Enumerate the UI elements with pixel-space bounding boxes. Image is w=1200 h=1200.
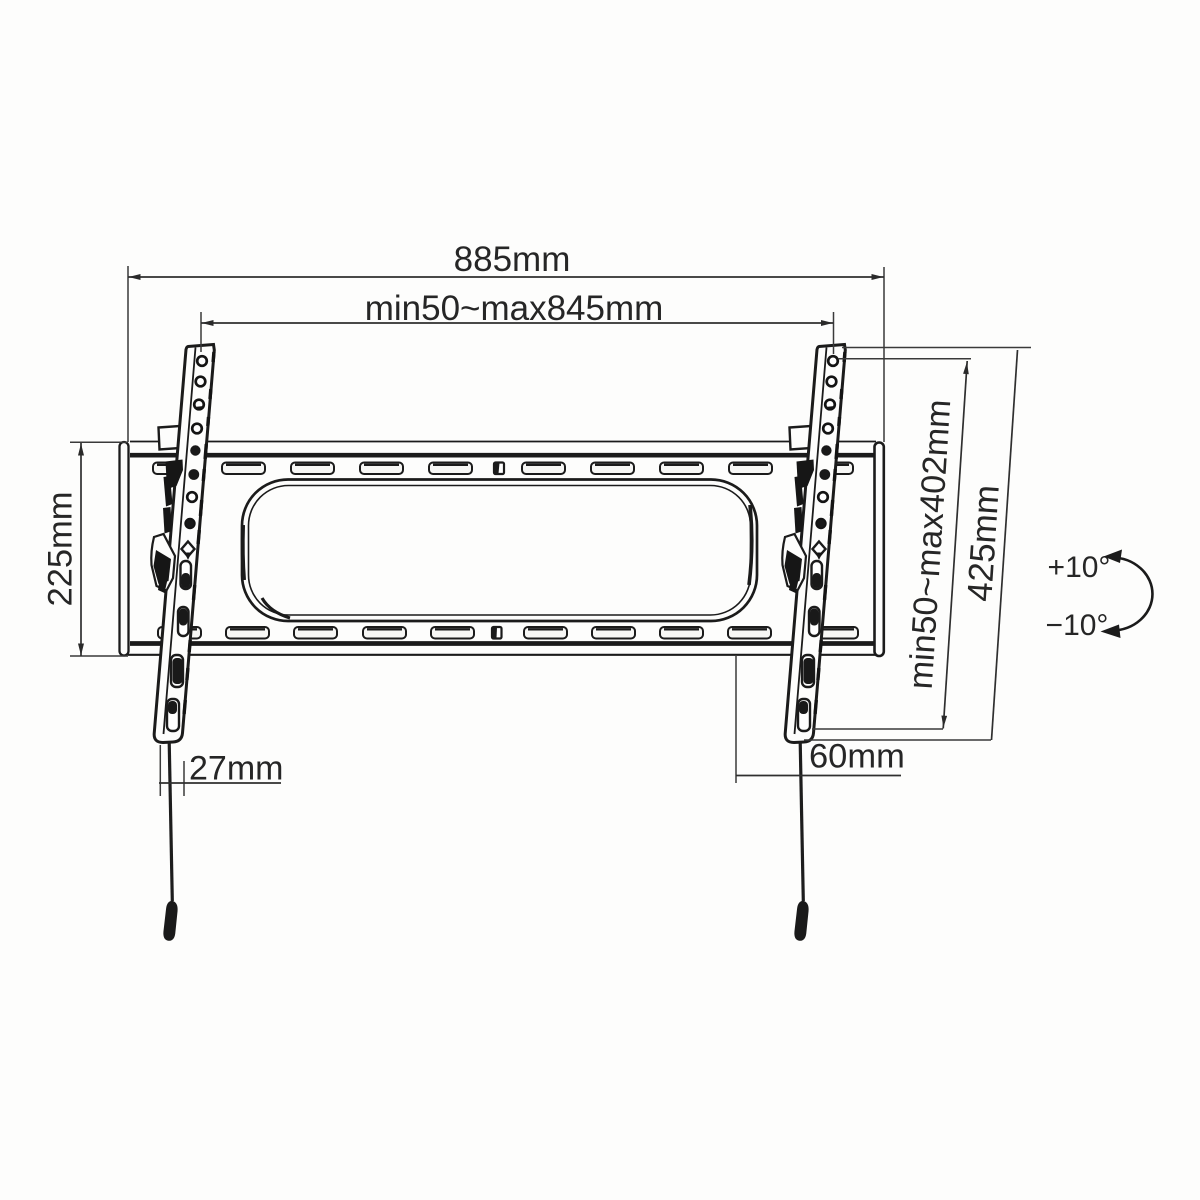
svg-text:27mm: 27mm — [189, 750, 283, 788]
svg-text:225mm: 225mm — [42, 491, 80, 606]
svg-text:60mm: 60mm — [809, 738, 905, 776]
svg-text:+10°: +10° — [1048, 551, 1111, 584]
svg-text:min50~max845mm: min50~max845mm — [365, 289, 664, 328]
svg-text:885mm: 885mm — [454, 240, 571, 279]
svg-text:−10°: −10° — [1046, 609, 1109, 642]
svg-text:425mm: 425mm — [960, 484, 1007, 603]
